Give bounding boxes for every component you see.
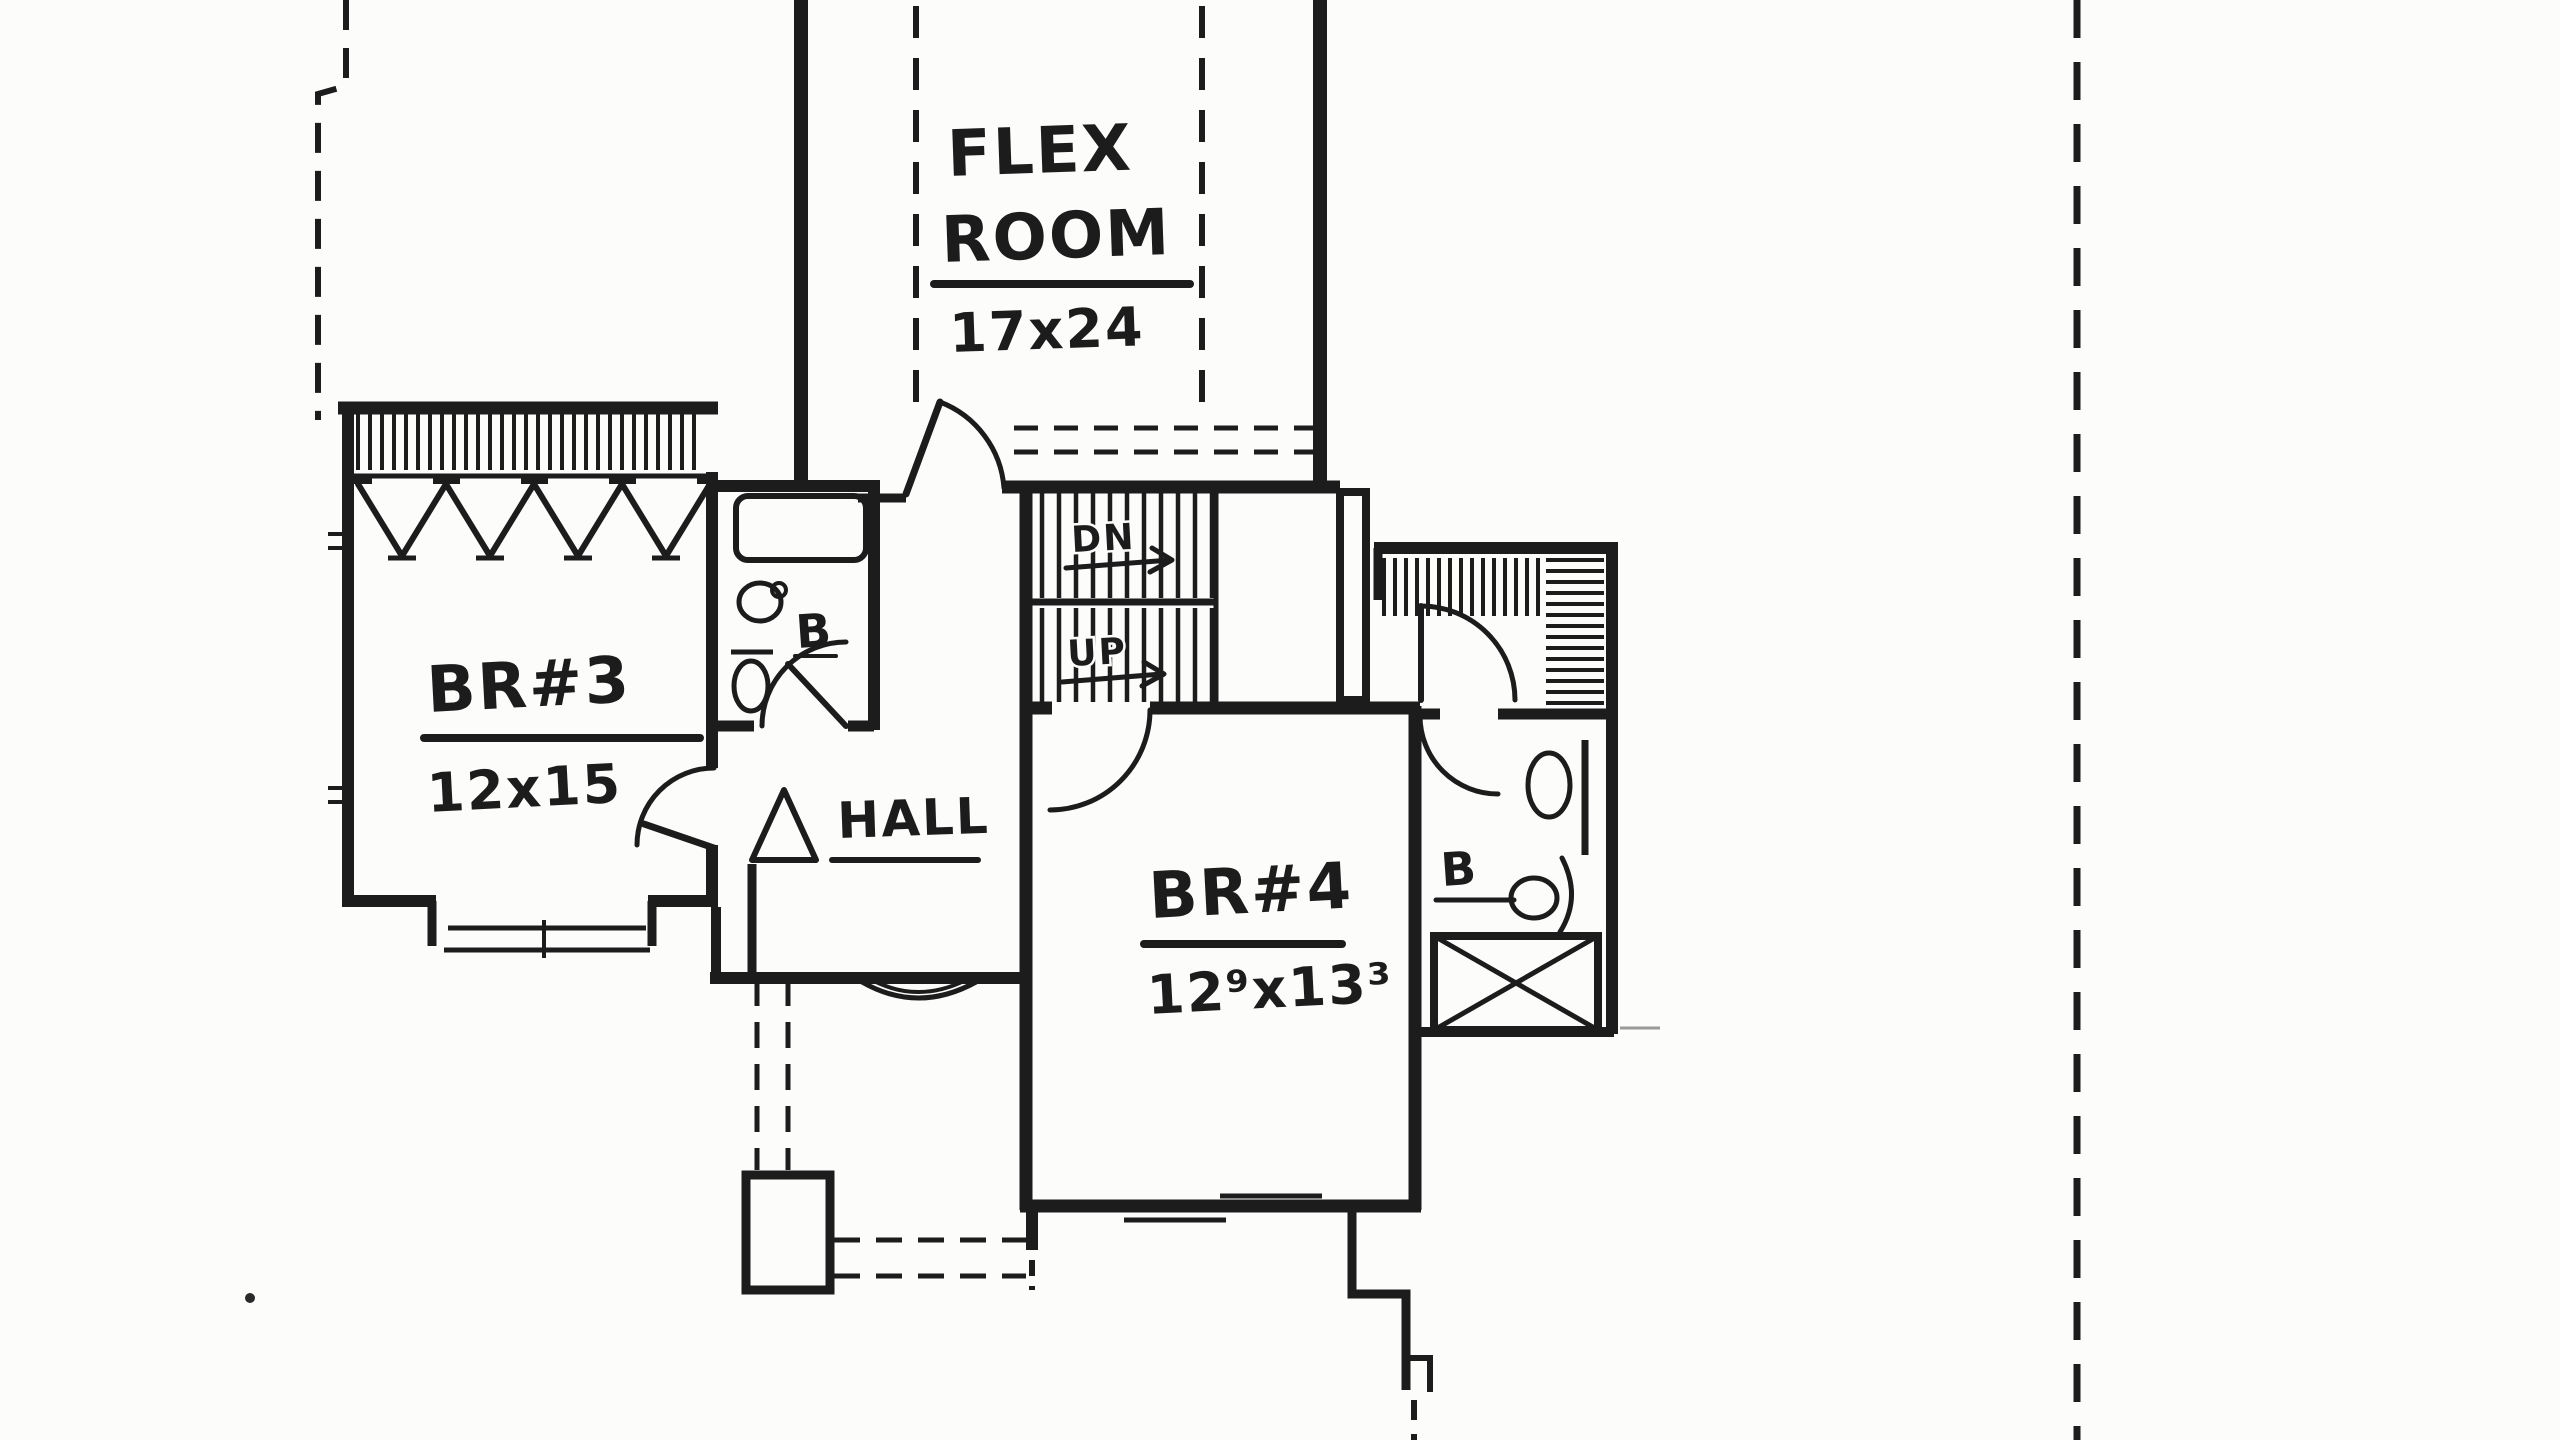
bedroom4-dims: 12⁹x13³ (1145, 951, 1394, 1027)
bedroom4-label: BR#4 (1147, 849, 1355, 934)
flex-room-label-line1: FLEX (946, 112, 1134, 192)
floor-plan-canvas: FLEX ROOM 17x24 BR#3 12x15 (0, 0, 2560, 1440)
bath-right-label: B (1439, 841, 1480, 897)
closet-shelf-hatch (1546, 560, 1604, 714)
flex-room-label-line2: ROOM (940, 196, 1172, 278)
floor-plan-sketch: FLEX ROOM 17x24 BR#3 12x15 (0, 0, 2560, 1440)
sink-icon (739, 583, 781, 621)
closet-door-triangle (752, 790, 816, 860)
wall-step-corner (1352, 1244, 1406, 1390)
bedroom3-label: BR#3 (425, 643, 633, 728)
door-panel (788, 664, 846, 726)
roof-outline-dashed (318, 0, 2077, 1440)
closet-rod-hatch (1384, 558, 1538, 616)
door-arc (1050, 710, 1150, 810)
bathtub-icon (736, 496, 866, 560)
window-hatch (358, 414, 694, 470)
door-arc (1421, 606, 1515, 700)
bath-middle: B (706, 486, 874, 730)
bedroom3: BR#3 12x15 (328, 408, 718, 958)
porch-post (746, 1175, 830, 1290)
chase-wall-box (1336, 490, 1370, 702)
stairs: DN UP (1026, 486, 1370, 1210)
vanity-counter (1560, 858, 1572, 932)
shower-x-mark (1434, 936, 1598, 1030)
flex-room: FLEX ROOM 17x24 (801, 0, 1320, 494)
roof-line-left (318, 0, 346, 420)
stairs-up-label: UP (1066, 631, 1128, 675)
casement-swing-symbols (358, 484, 710, 556)
bath-right: B (1415, 714, 1660, 1032)
toilet-icon (1528, 753, 1570, 817)
hall-label: HALL (836, 787, 990, 850)
bedroom4: BR#4 12⁹x13³ (1020, 706, 1421, 1220)
door-arc (1420, 716, 1498, 794)
door-panel (644, 824, 714, 848)
hall: HALL (710, 787, 1028, 998)
door-arc (940, 402, 1004, 488)
door-panel (906, 402, 940, 494)
bedroom3-dims: 12x15 (425, 752, 623, 825)
flex-room-dims: 17x24 (948, 295, 1145, 365)
ink-speck (245, 1293, 255, 1303)
stairs-down-label: DN (1070, 517, 1136, 561)
sink-icon (1511, 878, 1557, 918)
